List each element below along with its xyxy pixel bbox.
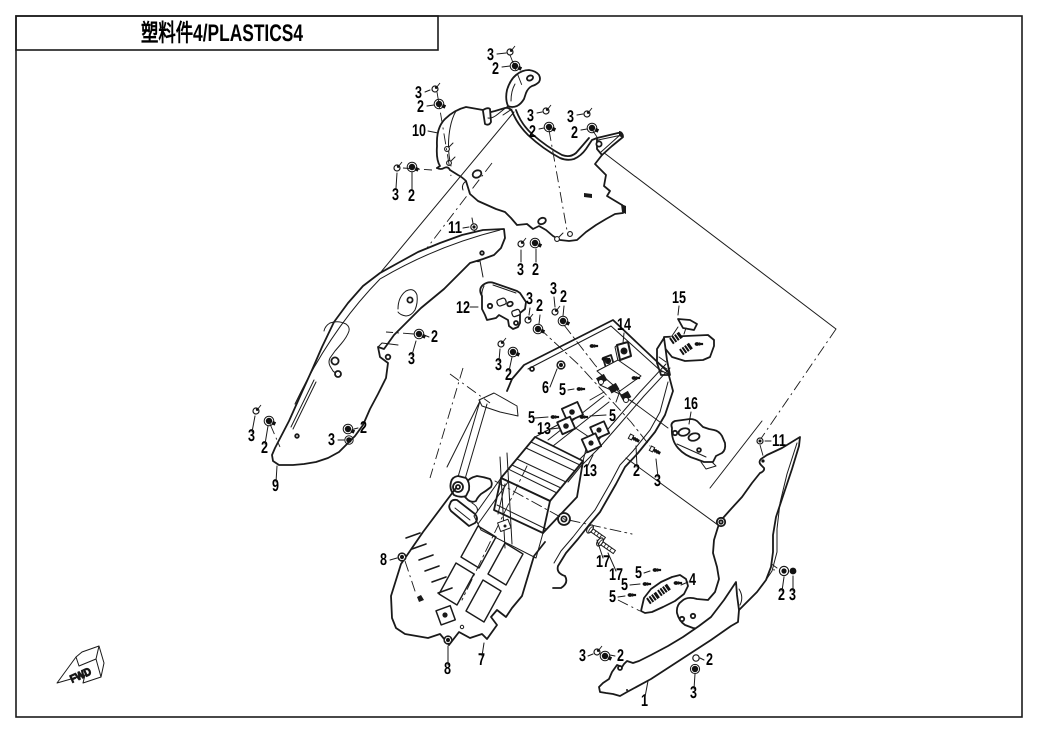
svg-text:2: 2 <box>417 97 424 116</box>
svg-text:塑料件4/PLASTICS4: 塑料件4/PLASTICS4 <box>141 20 303 47</box>
svg-text:3: 3 <box>550 279 557 298</box>
svg-text:15: 15 <box>672 288 686 307</box>
svg-text:17: 17 <box>596 552 610 571</box>
svg-text:3: 3 <box>690 683 697 702</box>
svg-text:11: 11 <box>448 218 462 237</box>
svg-text:5: 5 <box>528 408 535 427</box>
svg-text:11: 11 <box>772 431 786 450</box>
svg-text:16: 16 <box>684 394 698 413</box>
svg-text:7: 7 <box>478 650 485 669</box>
svg-text:12: 12 <box>456 298 470 317</box>
svg-text:1: 1 <box>641 691 648 710</box>
svg-text:2: 2 <box>532 260 539 279</box>
svg-text:4: 4 <box>689 570 696 589</box>
svg-text:3: 3 <box>408 349 415 368</box>
svg-text:5: 5 <box>559 380 566 399</box>
svg-text:3: 3 <box>328 430 335 449</box>
svg-text:3: 3 <box>392 185 399 204</box>
svg-text:3: 3 <box>579 646 586 665</box>
svg-text:6: 6 <box>542 378 549 397</box>
svg-text:3: 3 <box>495 355 502 374</box>
svg-text:2: 2 <box>571 123 578 142</box>
svg-text:5: 5 <box>635 563 642 582</box>
svg-text:2: 2 <box>536 296 543 315</box>
svg-text:2: 2 <box>261 438 268 457</box>
svg-text:2: 2 <box>505 365 512 384</box>
svg-text:2: 2 <box>617 646 624 665</box>
svg-text:14: 14 <box>617 315 631 334</box>
svg-text:5: 5 <box>609 587 616 606</box>
svg-text:2: 2 <box>360 418 367 437</box>
svg-text:13: 13 <box>583 461 597 480</box>
svg-text:3: 3 <box>248 426 255 445</box>
svg-text:2: 2 <box>560 287 567 306</box>
svg-text:10: 10 <box>412 121 426 140</box>
svg-text:5: 5 <box>609 406 616 425</box>
svg-text:2: 2 <box>706 650 713 669</box>
svg-text:3: 3 <box>526 289 533 308</box>
svg-text:5: 5 <box>621 575 628 594</box>
svg-text:3: 3 <box>517 260 524 279</box>
svg-text:9: 9 <box>272 476 279 495</box>
svg-text:8: 8 <box>380 550 387 569</box>
svg-text:2: 2 <box>778 585 785 604</box>
svg-text:2: 2 <box>431 327 438 346</box>
svg-text:13: 13 <box>537 419 551 438</box>
svg-text:2: 2 <box>529 122 536 141</box>
svg-text:2: 2 <box>492 59 499 78</box>
